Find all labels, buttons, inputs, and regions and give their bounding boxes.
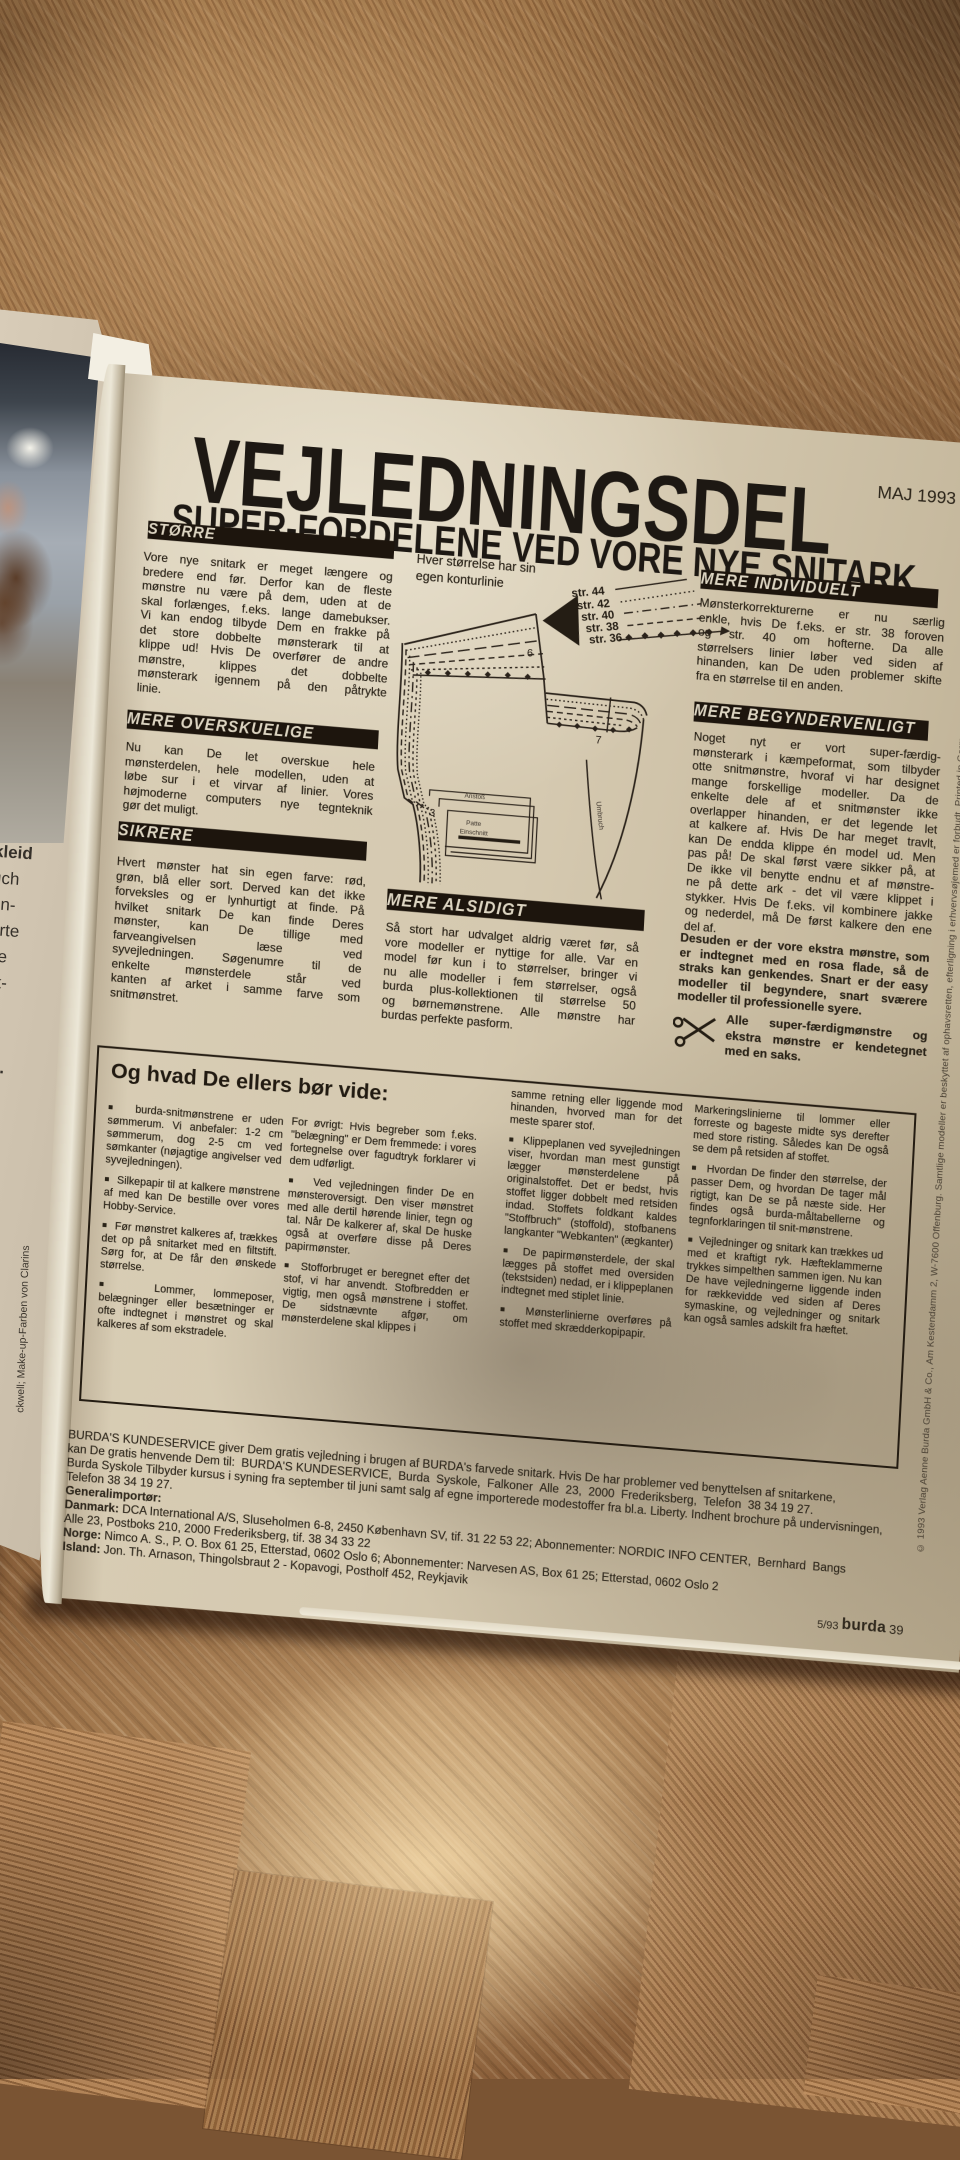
svg-text:Umbruch: Umbruch <box>594 801 604 830</box>
svg-text:7: 7 <box>595 734 602 746</box>
svg-text:3: 3 <box>429 808 436 819</box>
svg-text:Patte: Patte <box>466 820 482 828</box>
svg-text:6: 6 <box>527 647 534 659</box>
svg-text:Anstoß: Anstoß <box>464 793 485 802</box>
svg-text:str. 36: str. 36 <box>589 632 623 646</box>
